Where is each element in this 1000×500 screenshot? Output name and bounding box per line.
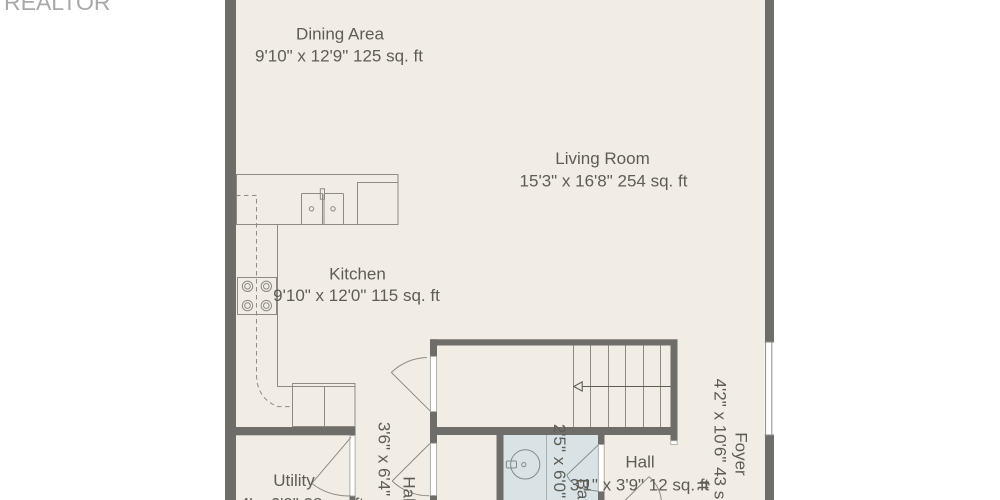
svg-text:REALTOR: REALTOR (4, 0, 111, 15)
svg-text:9'10" x 12'0" 115 sq. ft: 9'10" x 12'0" 115 sq. ft (273, 286, 440, 305)
svg-text:15'3" x 16'8" 254 sq. ft: 15'3" x 16'8" 254 sq. ft (520, 172, 688, 191)
svg-text:9'10" x 12'9" 125 sq. ft: 9'10" x 12'9" 125 sq. ft (255, 47, 423, 66)
svg-text:Hall: Hall (400, 476, 419, 500)
svg-text:Bath: Bath (574, 479, 593, 500)
svg-text:2'5" x 6'0": 2'5" x 6'0" (550, 424, 569, 498)
svg-text:Living Room: Living Room (555, 149, 650, 168)
svg-text:Dining Area: Dining Area (296, 25, 384, 44)
svg-text:Utility: Utility (273, 471, 315, 490)
svg-text:Hall: Hall (625, 452, 654, 471)
svg-text:ft: ft (694, 481, 713, 491)
svg-text:3'6" x 6'4": 3'6" x 6'4" (375, 422, 394, 496)
svg-text:Kitchen: Kitchen (329, 265, 386, 284)
svg-text:Foyer: Foyer (732, 432, 751, 476)
svg-text:4' x 6'9" 28 sq. ft: 4' x 6'9" 28 sq. ft (240, 495, 364, 500)
